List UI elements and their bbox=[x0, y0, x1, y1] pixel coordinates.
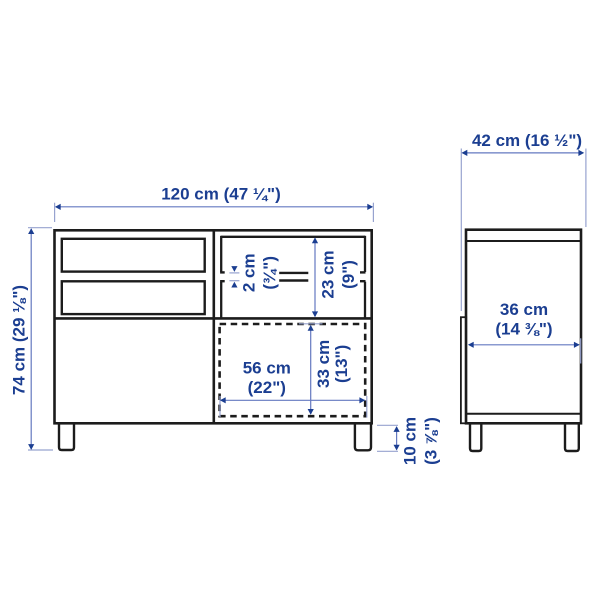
svg-text:33 cm: 33 cm bbox=[314, 340, 333, 388]
svg-text:23 cm: 23 cm bbox=[319, 250, 338, 298]
svg-text:56 cm: 56 cm bbox=[243, 359, 291, 378]
svg-text:120 cm (47 ¼"): 120 cm (47 ¼") bbox=[161, 184, 281, 203]
svg-text:(¾"): (¾") bbox=[260, 256, 279, 290]
svg-text:(14 ⅜"): (14 ⅜") bbox=[495, 320, 552, 339]
svg-text:74 cm (29 ⅛"): 74 cm (29 ⅛") bbox=[10, 285, 29, 395]
svg-text:36 cm: 36 cm bbox=[500, 300, 548, 319]
svg-text:10 cm: 10 cm bbox=[401, 417, 420, 465]
svg-text:42 cm (16 ½"): 42 cm (16 ½") bbox=[472, 131, 582, 150]
svg-text:(9"): (9") bbox=[339, 260, 358, 289]
svg-text:(3 ⅞"): (3 ⅞") bbox=[422, 417, 441, 465]
svg-text:(13"): (13") bbox=[332, 345, 351, 383]
svg-text:(22"): (22") bbox=[248, 378, 286, 397]
svg-text:2 cm: 2 cm bbox=[240, 253, 259, 292]
